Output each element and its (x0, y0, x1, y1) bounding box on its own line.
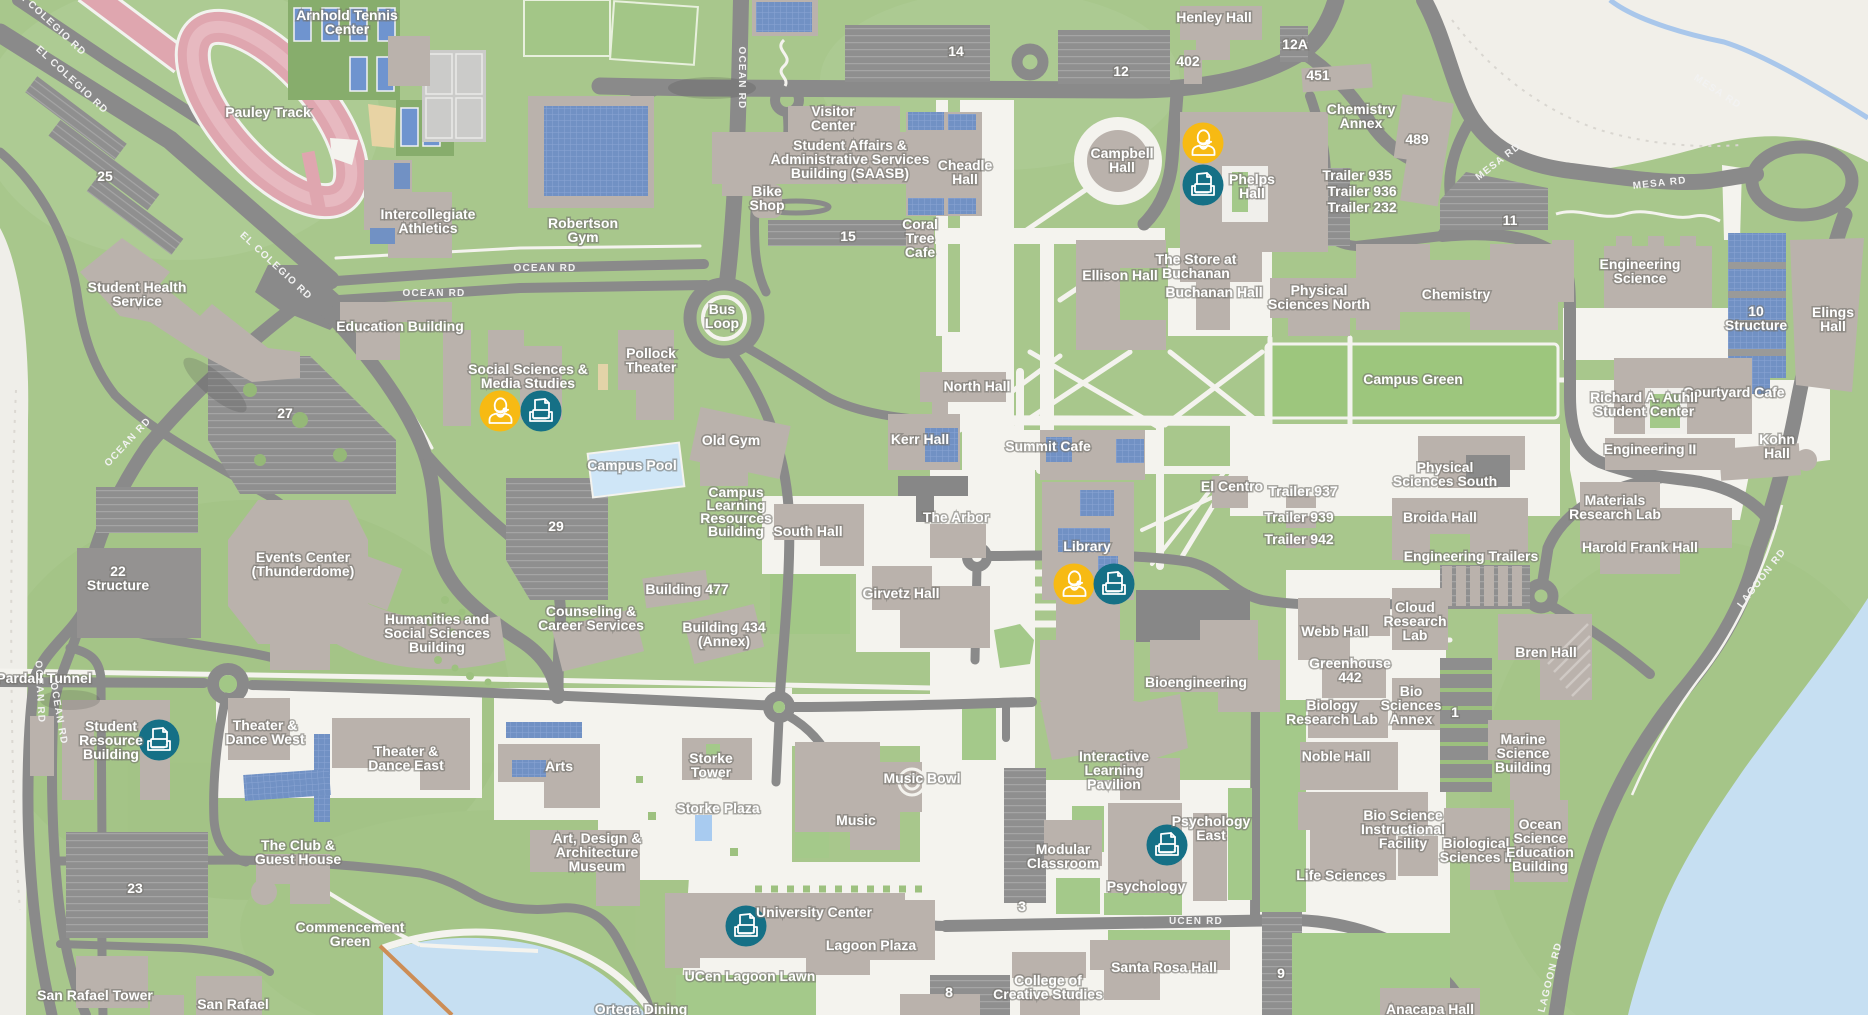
svg-text:OCEAN RD: OCEAN RD (736, 47, 747, 110)
svg-text:Arts: Arts (545, 758, 573, 774)
svg-text:Webb Hall: Webb Hall (1301, 623, 1368, 639)
svg-text:Old Gym: Old Gym (702, 432, 760, 448)
svg-text:Life Sciences: Life Sciences (1296, 867, 1386, 883)
svg-text:Buchanan Hall: Buchanan Hall (1165, 284, 1262, 300)
svg-text:PollockTheater: PollockTheater (626, 345, 677, 375)
svg-text:Pauley Track: Pauley Track (225, 104, 311, 120)
svg-text:25: 25 (97, 168, 113, 184)
svg-text:The Store atBuchanan: The Store atBuchanan (1156, 251, 1237, 281)
svg-text:Chemistry: Chemistry (1422, 286, 1491, 302)
svg-text:Ellison Hall: Ellison Hall (1082, 267, 1157, 283)
svg-text:8: 8 (945, 984, 953, 1000)
svg-text:1: 1 (1451, 704, 1459, 720)
svg-text:BiologicalSciences II: BiologicalSciences II (1440, 835, 1512, 865)
svg-text:402: 402 (1176, 53, 1200, 69)
svg-text:Education Building: Education Building (336, 318, 464, 334)
svg-text:VisitorCenter: VisitorCenter (811, 103, 856, 133)
svg-text:UCen Lagoon Lawn: UCen Lagoon Lawn (685, 968, 816, 984)
svg-text:Bioengineering: Bioengineering (1145, 674, 1247, 690)
svg-text:Trailer 936: Trailer 936 (1327, 183, 1396, 199)
svg-text:Building 477: Building 477 (645, 581, 728, 597)
svg-text:OCEAN RD: OCEAN RD (403, 288, 466, 299)
svg-text:San Rafael: San Rafael (197, 996, 269, 1012)
svg-text:Trailer 232: Trailer 232 (1327, 199, 1396, 215)
svg-text:North Hall: North Hall (944, 378, 1011, 394)
svg-text:Library: Library (1063, 538, 1111, 554)
svg-text:StudentResourceBuilding: StudentResourceBuilding (79, 718, 143, 762)
svg-text:San Rafael Tower: San Rafael Tower (37, 987, 153, 1003)
svg-text:South Hall: South Hall (773, 523, 842, 539)
svg-text:Counseling &Career Services: Counseling &Career Services (538, 603, 644, 633)
svg-text:The Arbor: The Arbor (923, 509, 990, 525)
svg-text:Trailer 937: Trailer 937 (1268, 483, 1337, 499)
svg-text:Trailer 942: Trailer 942 (1264, 531, 1333, 547)
svg-text:15: 15 (840, 228, 856, 244)
svg-text:27: 27 (277, 405, 293, 421)
svg-text:14: 14 (948, 43, 964, 59)
svg-text:Psychology: Psychology (1107, 878, 1186, 894)
svg-text:Henley Hall: Henley Hall (1176, 9, 1251, 25)
svg-text:23: 23 (127, 880, 143, 896)
svg-text:MarineScienceBuilding: MarineScienceBuilding (1495, 731, 1551, 775)
svg-text:Pardall Tunnel: Pardall Tunnel (0, 670, 92, 686)
svg-text:Music: Music (836, 812, 876, 828)
svg-text:Harold Frank Hall: Harold Frank Hall (1582, 539, 1698, 555)
svg-text:Campus Green: Campus Green (1363, 371, 1463, 387)
svg-text:BikeShop: BikeShop (750, 183, 785, 213)
svg-text:Engineering II: Engineering II (1604, 441, 1697, 457)
svg-text:Theater &Dance East: Theater &Dance East (368, 743, 444, 773)
svg-text:Bren Hall: Bren Hall (1515, 644, 1576, 660)
svg-text:Anacapa Hall: Anacapa Hall (1386, 1001, 1474, 1015)
svg-text:CoralTreeCafe: CoralTreeCafe (902, 216, 938, 260)
svg-text:Richard A. AuhllStudent Center: Richard A. AuhllStudent Center (1590, 389, 1698, 419)
svg-text:Events Center(Thunderdome): Events Center(Thunderdome) (252, 549, 355, 579)
svg-text:9: 9 (1277, 965, 1285, 981)
svg-text:12: 12 (1113, 63, 1129, 79)
svg-text:451: 451 (1306, 67, 1330, 83)
svg-text:Trailer 935: Trailer 935 (1322, 167, 1391, 183)
svg-text:Courtyard Cafe: Courtyard Cafe (1683, 384, 1784, 400)
svg-text:University Center: University Center (756, 904, 872, 920)
svg-text:Broida Hall: Broida Hall (1403, 509, 1477, 525)
svg-text:Storke Plaza: Storke Plaza (676, 800, 759, 816)
svg-text:BusLoop: BusLoop (705, 301, 739, 331)
svg-text:3: 3 (1018, 898, 1026, 914)
svg-text:Lagoon Plaza: Lagoon Plaza (826, 937, 916, 953)
svg-text:11: 11 (1503, 212, 1518, 228)
svg-text:Ortega Dining: Ortega Dining (595, 1001, 688, 1015)
svg-text:The Club &Guest House: The Club &Guest House (255, 837, 342, 867)
svg-text:CampusLearningResourcesBuildin: CampusLearningResourcesBuilding (700, 484, 772, 539)
svg-text:KohnHall: KohnHall (1759, 431, 1795, 461)
svg-text:Trailer 939: Trailer 939 (1264, 509, 1333, 525)
svg-text:Girvetz Hall: Girvetz Hall (862, 585, 939, 601)
svg-text:Santa Rosa Hall: Santa Rosa Hall (1111, 959, 1217, 975)
svg-text:Noble Hall: Noble Hall (1302, 748, 1370, 764)
svg-text:UCEN RD: UCEN RD (1169, 916, 1223, 927)
svg-text:29: 29 (548, 518, 564, 534)
svg-text:489: 489 (1405, 131, 1429, 147)
svg-text:StorkeTower: StorkeTower (689, 750, 733, 780)
svg-text:Music Bowl: Music Bowl (883, 770, 960, 786)
svg-text:InteractiveLearningPavilion: InteractiveLearningPavilion (1079, 748, 1149, 792)
svg-text:Kerr Hall: Kerr Hall (891, 431, 949, 447)
svg-text:Campus Pool: Campus Pool (587, 457, 676, 473)
svg-text:Engineering Trailers: Engineering Trailers (1404, 548, 1539, 564)
svg-text:Social Sciences &Media Studies: Social Sciences &Media Studies (468, 361, 588, 391)
svg-text:ModularClassroom: ModularClassroom (1027, 841, 1099, 871)
svg-text:OCEAN RD: OCEAN RD (514, 263, 577, 274)
svg-text:Theater &Dance West: Theater &Dance West (225, 717, 304, 747)
svg-text:12A: 12A (1282, 36, 1308, 52)
svg-text:El Centro: El Centro (1201, 478, 1263, 494)
svg-text:Summit Cafe: Summit Cafe (1005, 438, 1091, 454)
svg-text:Student Affairs &Administrativ: Student Affairs &Administrative Services… (771, 137, 930, 181)
